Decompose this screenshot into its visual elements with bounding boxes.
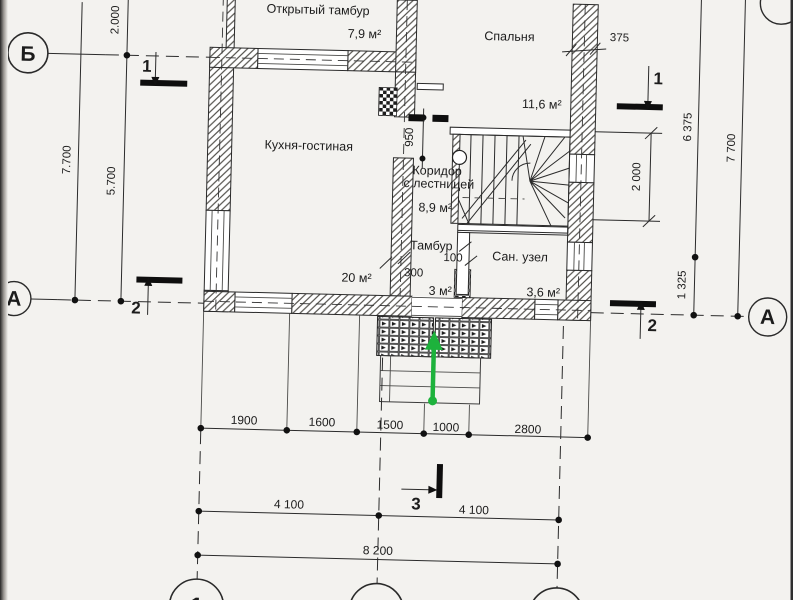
dim-4100-right: 4 100 xyxy=(459,503,490,518)
axis-label-B: Б xyxy=(20,43,36,66)
dim-1900: 1900 xyxy=(230,413,257,428)
porch-slab-right xyxy=(435,318,492,358)
area-kitchen-living: 20 м² xyxy=(341,271,371,286)
svg-text:375: 375 xyxy=(610,32,629,44)
floor-plan-scan: Б А А 1 2 3 2.000 7.700 5.700 xyxy=(0,0,800,600)
floor-plan-svg: Б А А 1 2 3 2.000 7.700 5.700 xyxy=(0,0,800,600)
dim-1000: 1000 xyxy=(432,420,459,435)
label-bathroom: Сан. узел xyxy=(492,249,548,264)
dim-1500: 1500 xyxy=(376,417,403,432)
scan-edge-right-line xyxy=(791,0,794,600)
area-open-vestibule: 7,9 м² xyxy=(348,27,382,42)
window-top-vestibule xyxy=(258,48,348,70)
dim-1325: 1 325 xyxy=(676,270,689,299)
stair-newel-post xyxy=(452,150,466,164)
label-open-vestibule: Открытый тамбур xyxy=(266,2,369,19)
wall-right-a xyxy=(570,4,599,155)
dim-7700-left: 7.700 xyxy=(61,145,74,174)
dim-7700-right: 7 700 xyxy=(725,134,738,163)
svg-text:1: 1 xyxy=(142,57,152,76)
area-corridor: 8,9 м² xyxy=(418,200,452,215)
label-vestibule: Тамбур xyxy=(410,238,453,253)
dim-5700-left: 5.700 xyxy=(105,166,118,195)
svg-text:2 000: 2 000 xyxy=(631,162,644,191)
dim-6375: 6 375 xyxy=(682,112,695,141)
area-vestibule: 3 м² xyxy=(428,284,452,299)
axis-label-1: 1 xyxy=(189,593,203,600)
svg-text:2: 2 xyxy=(131,298,141,317)
dim-1600: 1600 xyxy=(308,415,335,430)
svg-text:2: 2 xyxy=(647,316,657,335)
axis-label-A-left: А xyxy=(6,287,22,310)
area-bathroom: 3,6 м² xyxy=(526,285,560,300)
door-jamb-right xyxy=(432,115,448,122)
svg-text:300: 300 xyxy=(404,267,423,279)
wall-right-b xyxy=(567,182,593,243)
axis-label-A-right: А xyxy=(760,306,776,329)
label-bedroom: Спальня xyxy=(484,29,535,44)
porch-slab-left xyxy=(377,316,434,356)
shelf-corridor xyxy=(417,83,443,90)
dim-2000-left: 2.000 xyxy=(109,5,122,34)
scan-edge-right-margin xyxy=(793,0,800,600)
svg-text:3: 3 xyxy=(411,494,421,513)
svg-text:100: 100 xyxy=(443,252,462,264)
scan-edge-left xyxy=(0,0,8,600)
dim-2800: 2800 xyxy=(514,422,541,437)
svg-text:1: 1 xyxy=(653,69,663,88)
dim-4100-left: 4 100 xyxy=(274,497,305,512)
label-kitchen-living: Кухня-гостиная xyxy=(264,138,353,154)
entrance-arrow-shaft xyxy=(433,349,434,401)
area-bedroom: 11,6 м² xyxy=(522,97,562,112)
wall-left-upper xyxy=(206,57,234,211)
vent-shaft-kitchen xyxy=(379,87,398,115)
wall-corridor-upper xyxy=(394,72,415,117)
window-kitchen-bottom xyxy=(235,292,292,313)
window-kitchen-left xyxy=(204,210,230,291)
label-corridor-2: с лестницей xyxy=(403,176,474,192)
dim-8200: 8 200 xyxy=(363,543,394,558)
svg-text:950: 950 xyxy=(404,127,416,146)
